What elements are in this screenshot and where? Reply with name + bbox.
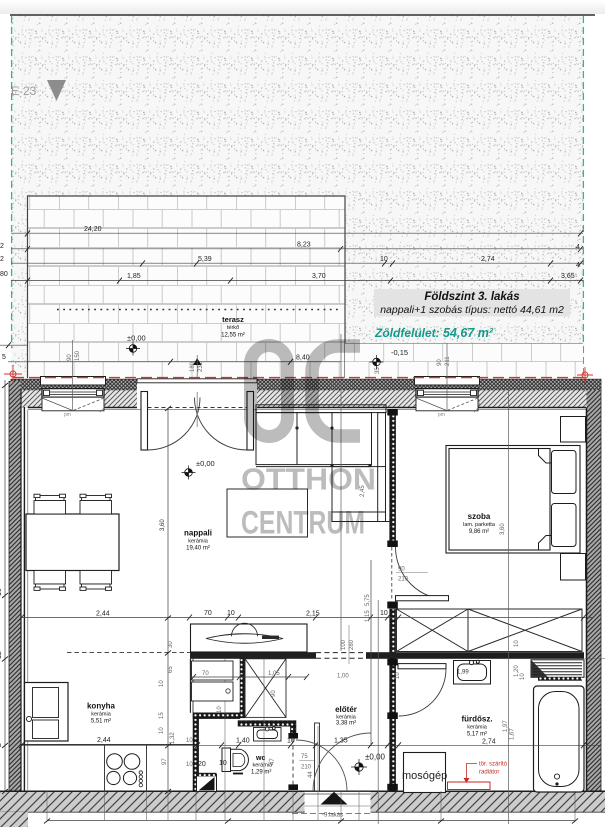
svg-text:12,55 m²: 12,55 m²	[221, 333, 245, 339]
svg-text:4: 4	[576, 244, 580, 251]
svg-text:9,86 m²: 9,86 m²	[469, 529, 489, 535]
svg-text:2,44: 2,44	[97, 737, 111, 744]
svg-text:10: 10	[287, 738, 295, 745]
svg-text:1,99: 1,99	[457, 670, 469, 676]
svg-text:kerámia: kerámia	[467, 725, 488, 731]
svg-text:3,60: 3,60	[500, 523, 506, 535]
svg-text:97: 97	[162, 758, 168, 765]
svg-text:90: 90	[67, 354, 73, 361]
svg-text:1,85: 1,85	[127, 273, 141, 280]
svg-text:5,17 m²: 5,17 m²	[467, 732, 487, 738]
svg-text:fürdősz.: fürdősz.	[461, 715, 492, 724]
svg-text:70: 70	[204, 610, 212, 617]
svg-text:±0,00: ±0,00	[365, 753, 386, 762]
svg-text:2,15: 2,15	[306, 611, 320, 618]
svg-text:1,32: 1,32	[170, 732, 176, 744]
svg-text:Földszint 3. lakás: Földszint 3. lakás	[424, 291, 519, 303]
svg-text:10: 10	[380, 256, 388, 263]
svg-text:CENTRUM: CENTRUM	[241, 505, 365, 541]
svg-text:44: 44	[308, 771, 314, 778]
svg-text:-9.lakás: -9.lakás	[322, 813, 343, 819]
svg-text:3,65: 3,65	[561, 273, 575, 280]
svg-text:konyha: konyha	[87, 702, 116, 711]
svg-text:90: 90	[271, 690, 277, 697]
svg-text:2,44: 2,44	[96, 611, 110, 618]
svg-text:8,23: 8,23	[297, 242, 311, 249]
svg-text:10: 10	[227, 610, 235, 617]
svg-text:előtér: előtér	[335, 705, 357, 714]
svg-text:nappali: nappali	[184, 529, 212, 538]
svg-text:12: 12	[0, 651, 3, 659]
svg-text:210: 210	[301, 765, 312, 771]
svg-text:90: 90	[398, 567, 405, 573]
svg-text:kerámia: kerámia	[91, 712, 112, 718]
svg-text:150: 150	[75, 350, 81, 361]
svg-text:1,05: 1,05	[268, 671, 280, 677]
svg-text:280: 280	[349, 639, 355, 650]
svg-text:10: 10	[514, 640, 520, 647]
svg-text:16: 16	[0, 588, 3, 596]
svg-text:10: 10	[520, 673, 526, 680]
svg-text:75: 75	[301, 754, 308, 760]
svg-text:szoba: szoba	[468, 512, 491, 521]
svg-text:1,40: 1,40	[236, 738, 250, 745]
svg-text:80: 80	[0, 271, 8, 278]
svg-text:20: 20	[198, 761, 206, 768]
svg-text:5,39: 5,39	[198, 256, 212, 263]
svg-text:211: 211	[445, 356, 451, 366]
svg-text:10: 10	[380, 610, 388, 617]
svg-text:nappali+1 szobás típus: nettó: nappali+1 szobás típus: nettó 44,61 m2	[380, 304, 564, 316]
svg-text:10: 10	[217, 706, 223, 713]
svg-text:-0,15: -0,15	[391, 348, 408, 357]
svg-text:19,40 m²: 19,40 m²	[186, 546, 210, 552]
svg-text:±0,00: ±0,00	[196, 459, 215, 468]
svg-text:OTTHON: OTTHON	[241, 462, 376, 497]
svg-text:2,74: 2,74	[481, 256, 495, 263]
svg-text:1,15: 1,15	[365, 610, 371, 622]
svg-text:Zöldfelület: 54,67 m²: Zöldfelület: 54,67 m²	[374, 326, 494, 340]
svg-text:10: 10	[159, 727, 165, 734]
svg-text:4: 4	[576, 262, 580, 269]
svg-text:30: 30	[168, 641, 174, 648]
svg-text:5,51 m²: 5,51 m²	[91, 719, 111, 725]
svg-text:3,60: 3,60	[160, 519, 166, 531]
svg-text:5,75: 5,75	[365, 594, 371, 606]
svg-text:1,00: 1,00	[337, 674, 349, 680]
svg-text:1,29 m²: 1,29 m²	[251, 770, 271, 776]
svg-text:10: 10	[219, 760, 227, 767]
svg-text:kerámia: kerámia	[188, 539, 209, 545]
svg-text:10: 10	[186, 738, 193, 744]
svg-text:24,20: 24,20	[84, 226, 102, 233]
svg-text:tör. szárító: tör. szárító	[479, 762, 508, 768]
svg-text:47: 47	[270, 758, 276, 765]
svg-text:mosógép: mosógép	[402, 770, 447, 782]
svg-text:10: 10	[159, 680, 165, 687]
svg-text:2,74: 2,74	[482, 739, 496, 746]
svg-text:70: 70	[202, 671, 209, 677]
svg-text:90: 90	[437, 359, 443, 366]
svg-text:terasz: terasz	[222, 315, 244, 324]
svg-text:100: 100	[341, 639, 347, 650]
svg-text:1,67: 1,67	[510, 728, 516, 740]
svg-text:2: 2	[0, 256, 4, 263]
svg-text:1,35: 1,35	[334, 738, 348, 745]
svg-text:pm: pm	[64, 412, 71, 418]
svg-text:±0,00: ±0,00	[127, 334, 146, 343]
svg-text:3,70: 3,70	[312, 273, 326, 280]
svg-text:65: 65	[168, 666, 174, 673]
svg-text:pm: pm	[438, 412, 445, 418]
svg-text:1,97: 1,97	[503, 720, 509, 732]
svg-text:3,38 m²: 3,38 m²	[336, 721, 356, 727]
svg-text:E-23: E-23	[11, 84, 37, 98]
svg-text:radiátor: radiátor	[479, 770, 499, 776]
svg-text:10: 10	[186, 762, 193, 768]
svg-text:2: 2	[0, 743, 3, 747]
svg-text:210: 210	[398, 577, 409, 583]
svg-text:10: 10	[395, 672, 401, 679]
svg-text:2: 2	[0, 243, 4, 250]
svg-text:térkő: térkő	[227, 325, 239, 331]
svg-text:lam. parketta: lam. parketta	[463, 522, 496, 528]
svg-text:5: 5	[2, 354, 6, 361]
svg-text:15: 15	[159, 712, 165, 719]
svg-text:35: 35	[375, 367, 381, 374]
